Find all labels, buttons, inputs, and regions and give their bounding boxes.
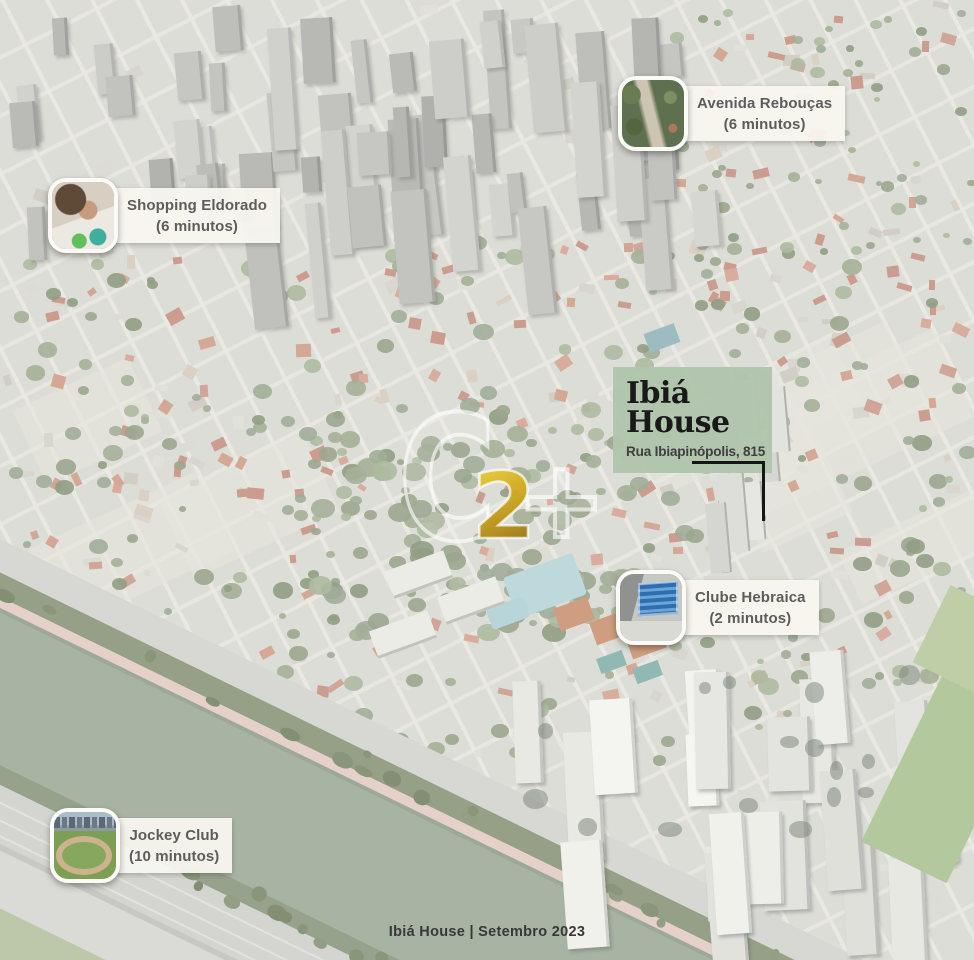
map-texture [253,384,272,399]
map-texture [125,425,144,440]
map-texture [111,558,123,568]
map-texture [886,266,900,278]
leader-line-horizontal [692,461,765,464]
map-texture [643,543,655,553]
map-texture [751,670,768,684]
map-texture [830,761,842,780]
property-title: Ibiá House [626,380,768,437]
map-texture [774,330,790,343]
map-texture [36,475,52,488]
map-texture [744,307,761,320]
map-texture [347,185,386,249]
map-texture [839,222,849,230]
map-texture [744,706,762,721]
map-texture [795,376,808,387]
map-texture [912,435,932,451]
map-texture [127,255,135,269]
map-texture [694,254,704,262]
map-texture [9,101,39,148]
map-texture [155,385,168,392]
callout-title: Shopping Eldorado [127,195,267,216]
callout-subtitle: (2 minutos) [695,608,806,629]
map-texture [723,9,733,17]
callout-subtitle: (6 minutos) [697,114,832,135]
map-texture [797,357,811,368]
map-texture [862,754,875,769]
map-texture [301,156,322,193]
map-texture [805,739,825,757]
map-texture [833,15,843,23]
callout-shopping-eldorado: Shopping Eldorado (6 minutos) [48,178,280,253]
map-texture [734,45,747,51]
map-texture [903,436,914,445]
map-texture [888,857,929,960]
map-texture [327,652,335,658]
map-texture [798,455,806,462]
map-texture [855,60,863,66]
map-texture [943,233,949,238]
map-texture [224,585,232,592]
map-texture [337,448,347,456]
map-texture [14,311,28,322]
shopping-eldorado-photo [52,182,114,249]
map-texture [864,612,883,627]
map-texture [350,496,362,505]
clube-hebraica-label: Clube Hebraica (2 minutos) [679,580,819,635]
map-texture [445,734,459,745]
jockey-club-thumbnail [50,808,120,883]
map-texture [340,431,361,447]
map-texture [745,34,753,41]
map-texture [65,427,81,440]
map-texture [341,513,351,521]
map-texture [846,45,854,52]
map-texture [661,491,680,506]
map-texture [497,252,505,259]
map-texture [926,298,939,308]
map-texture [194,569,214,585]
map-texture [309,576,332,594]
map-texture [567,298,575,308]
map-texture [89,539,108,554]
map-texture [920,318,932,328]
map-texture [881,181,894,191]
map-texture [445,678,455,686]
map-texture [246,428,256,436]
map-texture [514,320,526,329]
map-texture [538,723,553,738]
map-texture [906,539,925,554]
map-texture [9,467,23,478]
avenida-reboucas-label: Avenida Rebouças (6 minutos) [681,86,845,141]
map-texture [26,365,45,380]
map-texture [714,20,721,26]
map-texture [475,749,483,757]
map-texture [179,506,186,512]
map-texture [346,380,365,395]
watermark-digit-2: 2 [472,453,536,560]
jockey-club-label: Jockey Club (10 minutos) [113,818,232,873]
callout-subtitle: (6 minutos) [127,216,267,237]
map-texture [273,582,293,598]
map-texture [624,242,633,252]
map-texture [815,179,822,184]
map-texture [79,359,93,370]
map-texture [406,674,423,687]
map-texture [937,64,950,74]
map-texture [389,52,417,94]
map-texture [860,73,875,79]
map-texture [724,268,739,282]
map-texture [55,480,74,496]
map-texture [200,385,208,398]
map-texture [112,578,127,590]
map-texture [38,342,57,357]
map-texture [723,676,735,690]
map-texture [127,534,138,543]
map-texture [208,63,227,112]
map-texture [718,165,726,171]
map-texture [804,399,821,412]
map-texture [835,286,851,299]
avenida-reboucas-photo [622,80,684,147]
map-texture [959,446,974,459]
map-texture [103,445,123,461]
map-texture [767,716,812,791]
map-texture [174,51,205,101]
map-texture [890,560,911,577]
map-texture [695,300,708,310]
map-texture [938,334,950,343]
map-texture [98,461,108,469]
map-texture [589,698,638,796]
map-texture [304,359,321,373]
map-texture [899,591,915,603]
map-texture [523,789,548,809]
map-texture [918,410,930,422]
callout-title: Avenida Rebouças [697,93,832,114]
shopping-eldorado-thumbnail [48,178,118,253]
map-texture [141,417,149,424]
map-texture [138,490,150,503]
property-card: Ibiá House Rua Ibiapinópolis, 815 [613,367,772,473]
map-texture [308,459,321,469]
map-texture [294,510,308,521]
map-texture [788,172,800,182]
property-address: Rua Ibiapinópolis, 815 [626,444,768,459]
map-texture [420,4,438,15]
map-texture [736,323,749,334]
map-texture [955,107,967,116]
map-texture [290,555,297,564]
map-texture [929,397,937,408]
map-texture [957,10,965,17]
map-texture [174,461,186,470]
map-texture [855,538,872,547]
map-texture [929,280,936,290]
map-texture [831,571,848,580]
map-texture [658,822,682,837]
callout-title: Jockey Club [129,825,219,846]
clube-hebraica-thumbnail [616,570,686,645]
shopping-eldorado-label: Shopping Eldorado (6 minutos) [111,188,280,243]
callout-subtitle: (10 minutos) [129,846,219,867]
map-texture [567,676,576,683]
map-texture [162,438,177,450]
map-texture [56,459,76,475]
map-texture [52,17,69,55]
map-texture [904,375,920,387]
map-texture [739,798,759,813]
map-texture [344,676,363,692]
map-texture [296,344,311,357]
map-texture [106,75,136,117]
map-texture [429,38,470,119]
map-texture [44,433,54,447]
map-texture [727,243,742,255]
map-texture [466,370,477,383]
map-texture [952,383,966,394]
map-texture [212,5,244,52]
map-texture [287,285,306,300]
map-texture [701,269,713,278]
map-texture [853,557,871,572]
map-texture [232,416,243,430]
map-texture [377,339,395,353]
map-texture [854,476,872,491]
map-texture [690,190,721,247]
callout-clube-hebraica: Clube Hebraica (2 minutos) [616,570,819,645]
map-texture [327,615,339,625]
map-texture [529,620,537,626]
clube-hebraica-photo [620,574,682,641]
map-texture [791,58,805,69]
map-texture [653,755,667,766]
map-texture [192,394,201,401]
map-texture [246,487,264,500]
map-texture [46,288,60,300]
map-texture [578,818,597,835]
map-texture [91,259,104,269]
map-texture [279,613,286,619]
callout-avenida-reboucas: Avenida Rebouças (6 minutos) [618,76,845,151]
map-texture [737,789,752,795]
map-texture [299,427,317,441]
map-texture [109,426,121,436]
map-texture [712,170,722,178]
map-texture [97,477,111,488]
map-texture [816,45,826,53]
map-texture [793,36,803,44]
avenida-reboucas-thumbnail [618,76,688,151]
map-texture [858,787,874,798]
map-texture [630,477,648,492]
map-texture [915,195,927,205]
map-texture [408,317,422,330]
jockey-club-photo [54,812,116,879]
map-texture [147,277,155,284]
map-texture [391,310,407,323]
map-texture [289,646,307,661]
map-texture [311,499,335,518]
map-texture [916,554,934,568]
map-texture [615,278,628,289]
map-texture [357,624,369,633]
map-texture [23,541,31,547]
map-texture [123,473,138,486]
map-texture [353,547,368,559]
map-texture [922,41,929,53]
map-texture [311,528,320,535]
map-texture [799,316,808,322]
map-texture [300,17,335,84]
footer-caption: Ibiá House | Setembro 2023 [0,924,974,940]
map-texture [817,608,835,623]
map-texture [755,724,763,730]
map-texture [933,562,951,576]
map-texture [686,529,703,543]
map-texture [805,682,825,702]
property-title-line2: House [626,409,768,438]
map-texture [670,32,685,44]
map-texture [473,324,494,340]
map-texture [326,412,345,427]
aerial-map-poster: C + 2 Avenida Rebouças (6 minutos) Shopp… [0,0,974,960]
map-texture [673,546,684,553]
leader-line-vertical [762,461,765,521]
map-texture [850,76,863,90]
c2plus-watermark-logo: C + 2 [398,406,598,571]
map-texture [899,665,919,685]
map-texture [281,416,295,427]
map-texture [967,180,974,187]
map-texture [559,344,572,354]
callout-jockey-club: Jockey Club (10 minutos) [50,808,232,883]
map-texture [919,505,927,512]
map-texture [946,485,959,494]
map-texture [125,318,141,331]
map-texture [711,299,725,310]
map-texture [152,455,165,468]
map-texture [820,248,828,254]
map-texture [173,257,183,265]
map-texture [357,131,393,176]
map-texture [373,461,398,481]
map-texture [830,547,845,554]
map-texture [725,169,736,178]
map-texture [88,562,101,570]
callout-title: Clube Hebraica [695,587,806,608]
map-texture [789,821,811,837]
map-texture [27,207,47,260]
